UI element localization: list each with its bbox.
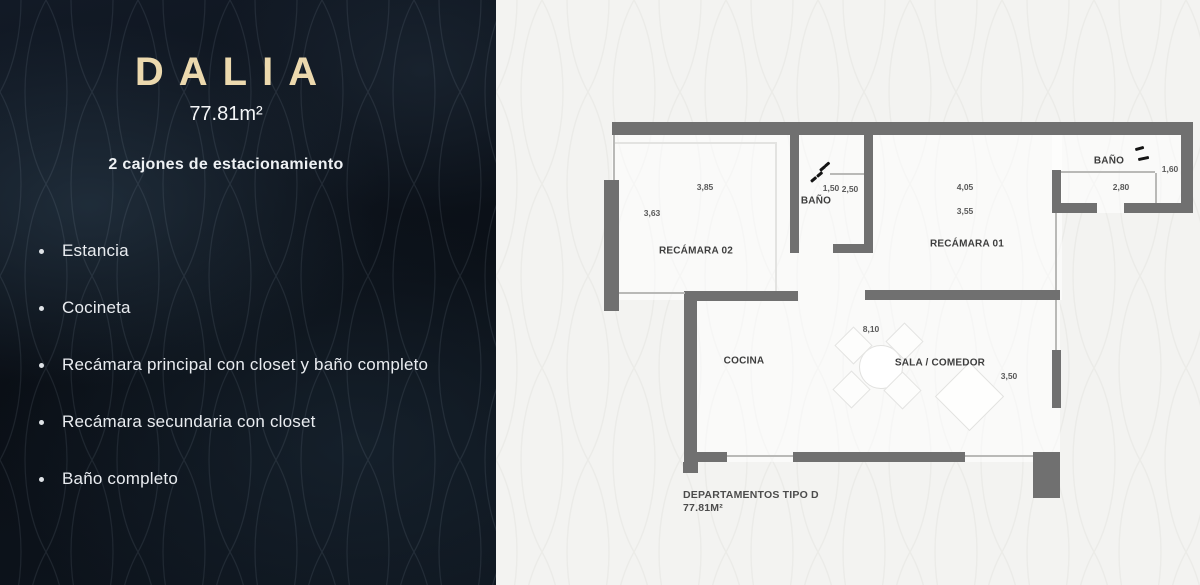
wall-bottom-main	[793, 452, 965, 462]
feature-item: Recámara principal con closet y baño com…	[0, 354, 496, 376]
bullet-dot-icon	[39, 249, 44, 254]
plan-footer: DEPARTAMENTOS TIPO D 77.81M²	[683, 489, 819, 515]
window-line-bed2	[619, 292, 685, 294]
dim-bath-top-height: 1,60	[1162, 164, 1179, 174]
shelf-line-bath-top	[1061, 171, 1155, 173]
window-line-left	[613, 135, 615, 180]
feature-label: Recámara principal con closet y baño com…	[62, 355, 428, 375]
wall-right-segment	[1052, 350, 1061, 408]
wall-bath-mid-left	[790, 135, 799, 253]
footprint-upper	[612, 135, 1062, 300]
window-line-bottom-left	[727, 455, 793, 457]
feature-label: Estancia	[62, 241, 129, 261]
dim-bed2-width: 3,85	[697, 182, 714, 192]
room-label-bedroom1: RECÁMARA 01	[930, 239, 1004, 250]
unit-parking: 2 cajones de estacionamiento	[0, 156, 452, 174]
wall-top-exterior	[612, 122, 1193, 135]
dim-bath-mid-height: 2,50	[842, 184, 859, 194]
footprint-bath-top	[1052, 135, 1193, 213]
room-label-bedroom2: RECÁMARA 02	[659, 246, 733, 257]
dim-bed1-width: 4,05	[957, 182, 974, 192]
plan-footer-area: 77.81M²	[683, 502, 819, 515]
bullet-dot-icon	[39, 420, 44, 425]
unit-title: DALIA	[0, 50, 452, 95]
wall-right-exterior	[1181, 122, 1193, 213]
feature-item: Baño completo	[0, 468, 496, 490]
closet-line	[614, 142, 775, 144]
steam-dashes-icon	[809, 163, 831, 185]
window-line-bottom-right	[965, 455, 1033, 457]
unit-area: 77.81m²	[0, 103, 452, 126]
feature-item: Recámara secundaria con closet	[0, 411, 496, 433]
wall-kitchen-top	[684, 291, 798, 301]
bullet-dot-icon	[39, 306, 44, 311]
feature-list: Estancia Cocineta Recámara principal con…	[0, 240, 496, 525]
dim-bath-mid-width: 1,50	[823, 183, 840, 193]
room-label-bath-top: BAÑO	[1094, 156, 1124, 167]
panel-content: DALIA 77.81m² 2 cajones de estacionamien…	[0, 0, 452, 174]
wall-bottom-stub	[697, 452, 727, 462]
dim-bed1-height: 3,55	[957, 206, 974, 216]
feature-item: Cocineta	[0, 297, 496, 319]
dim-bed2-height: 3,63	[644, 208, 661, 218]
room-label-bath-mid: BAÑO	[801, 196, 831, 207]
dim-living-width: 8,10	[863, 324, 880, 334]
feature-label: Baño completo	[62, 469, 178, 489]
window-line-living-right	[1055, 300, 1057, 350]
feature-item: Estancia	[0, 240, 496, 262]
wall-bath-mid-right	[864, 135, 873, 253]
feature-label: Recámara secundaria con closet	[62, 412, 316, 432]
steam-waves-icon	[1133, 144, 1153, 164]
wall-living-top	[865, 290, 1060, 300]
wall-bath-top-left	[1052, 170, 1061, 213]
window-line-bed1-right	[1055, 213, 1057, 290]
wall-left-exterior	[604, 180, 619, 311]
wall-kitchen-left	[684, 291, 697, 473]
plan-footer-type: DEPARTAMENTOS TIPO D	[683, 489, 819, 502]
partition-line-bath-top	[1155, 173, 1157, 203]
closet-line	[775, 142, 777, 293]
shelf-line-bath-mid	[830, 173, 864, 175]
room-label-kitchen: COCINA	[724, 356, 765, 367]
brochure-slide: RECÁMARA 02 RECÁMARA 01 BAÑO BAÑO COCINA…	[0, 0, 1200, 585]
column-block	[1033, 452, 1060, 498]
info-panel: DALIA 77.81m² 2 cajones de estacionamien…	[0, 0, 496, 585]
bullet-dot-icon	[39, 363, 44, 368]
room-label-living: SALA / COMEDOR	[895, 358, 985, 369]
bullet-dot-icon	[39, 477, 44, 482]
wall-bath-mid-bottom	[833, 244, 873, 253]
wall-bath-top-bottom-left	[1055, 203, 1097, 213]
wall-kitchen-foot	[683, 462, 698, 473]
feature-label: Cocineta	[62, 298, 131, 318]
wall-bath-top-bottom-right	[1124, 203, 1193, 213]
dim-living-height: 3,50	[1001, 371, 1018, 381]
dim-bath-top-width: 2,80	[1113, 182, 1130, 192]
